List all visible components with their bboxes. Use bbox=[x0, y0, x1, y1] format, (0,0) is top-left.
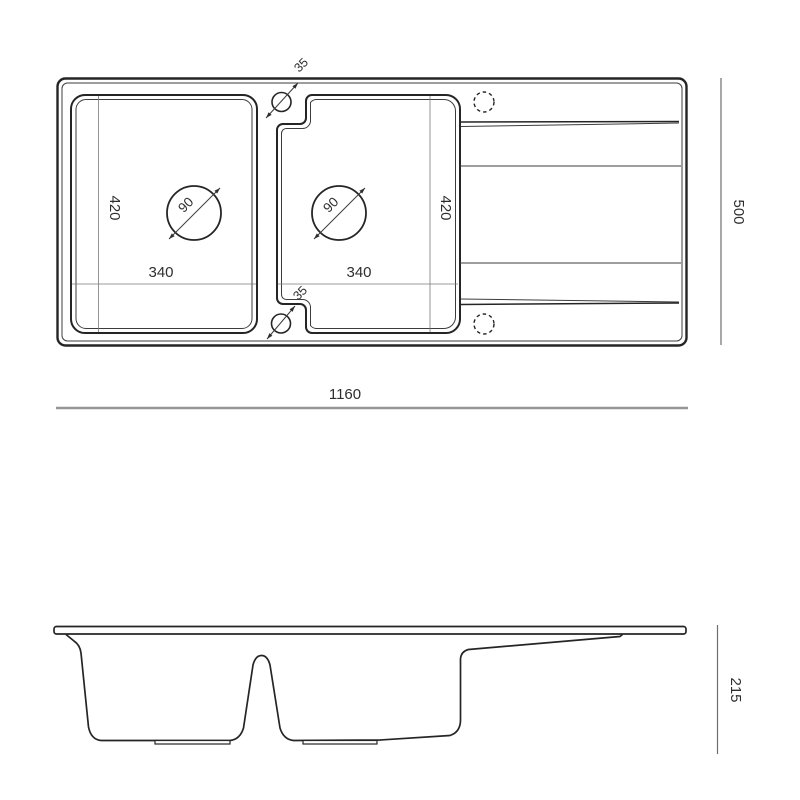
outer-rim bbox=[58, 79, 687, 346]
right-bowl-depth-label: 420 bbox=[437, 195, 454, 220]
overflow-hole-bottom: 35 bbox=[267, 283, 310, 339]
drain-hole-right-label: 90 bbox=[320, 194, 341, 215]
drain-hole-right: 90 bbox=[312, 186, 366, 240]
overall-depth-label: 500 bbox=[730, 199, 747, 224]
height-label: 215 bbox=[727, 677, 744, 702]
drain-hole-left-circle bbox=[167, 186, 221, 240]
sink-technical-drawing: 35 35 90 90 420 bbox=[0, 0, 800, 800]
left-bowl-depth-label: 420 bbox=[106, 195, 123, 220]
drain-hole-left-diameter-line bbox=[169, 188, 220, 239]
right-bowl-width-label: 340 bbox=[346, 264, 371, 281]
drain-hole-right-circle bbox=[312, 186, 366, 240]
drain-hole-left: 90 bbox=[167, 186, 221, 240]
overflow-hole-top: 35 bbox=[266, 55, 311, 118]
overall-dimensions: 1160 500 bbox=[56, 78, 747, 408]
overflow-hole-bottom-label: 35 bbox=[290, 283, 310, 303]
drainer-groove-4a bbox=[461, 299, 679, 302]
drain-hole-left-label: 90 bbox=[175, 194, 196, 215]
drainer-groove-1b bbox=[461, 123, 679, 127]
side-view: 215 bbox=[54, 625, 744, 754]
tap-hole-top bbox=[474, 92, 494, 112]
side-view-pad-left bbox=[155, 741, 230, 745]
side-view-pad-right bbox=[303, 741, 377, 745]
drainer-groove-1a bbox=[461, 122, 679, 123]
bowl-dimensions: 420 420 340 340 bbox=[72, 96, 458, 332]
overall-width-label: 1160 bbox=[329, 386, 361, 403]
overflow-hole-top-label: 35 bbox=[291, 55, 311, 75]
drainer-board bbox=[460, 122, 681, 305]
sink-technical-drawing-page: 35 35 90 90 420 bbox=[0, 0, 800, 800]
side-view-profile bbox=[66, 635, 623, 741]
top-view: 35 35 90 90 420 bbox=[58, 55, 687, 345]
overflow-hole-top-leader bbox=[266, 83, 298, 118]
side-view-rim bbox=[54, 627, 686, 635]
left-bowl-width-label: 340 bbox=[148, 264, 173, 281]
left-bowl-inner-edge bbox=[76, 100, 252, 329]
tap-hole-bottom bbox=[474, 314, 494, 334]
drainer-groove-4b bbox=[461, 303, 679, 305]
drain-hole-right-diameter-line bbox=[314, 188, 365, 239]
